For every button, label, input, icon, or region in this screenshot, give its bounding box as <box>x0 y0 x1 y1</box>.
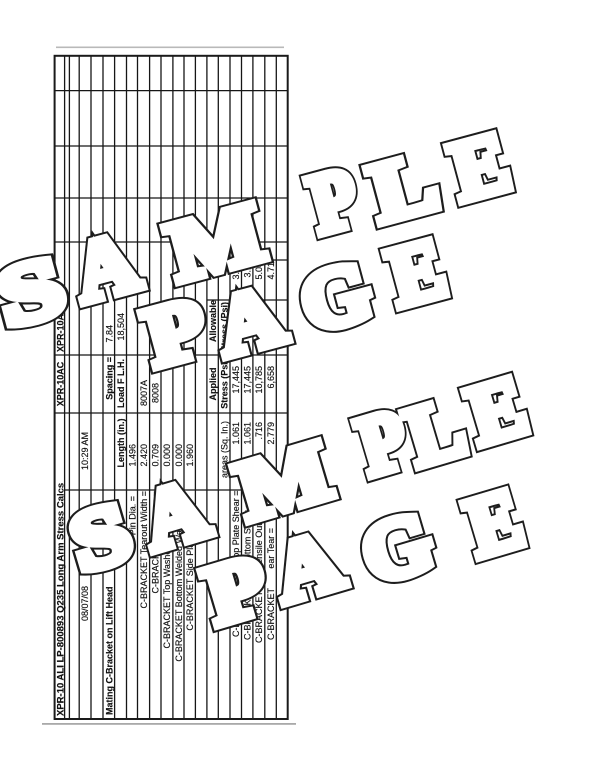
svg-text:0.709: 0.709 <box>151 444 161 467</box>
svg-text:Load F L.H.: Load F L.H. <box>116 359 126 408</box>
svg-text:6,658: 6,658 <box>266 366 276 389</box>
svg-text:1.496: 1.496 <box>128 444 138 467</box>
svg-text:Spacing =: Spacing = <box>105 357 115 400</box>
svg-text:18,504: 18,504 <box>116 313 126 341</box>
svg-text:0.000: 0.000 <box>162 444 172 467</box>
svg-text:7.84: 7.84 <box>105 325 115 343</box>
svg-text:8007A: 8007A <box>139 380 149 406</box>
svg-text:1.061: 1.061 <box>243 422 253 445</box>
svg-text:Applied: Applied <box>208 368 218 401</box>
svg-text:10:29 AM: 10:29 AM <box>80 432 90 470</box>
svg-text:.716: .716 <box>254 422 264 440</box>
svg-text:08/07/08: 08/07/08 <box>80 586 90 621</box>
svg-text:Mating C-Bracket on Lift Head: Mating C-Bracket on Lift Head <box>105 586 115 715</box>
svg-text:1.061: 1.061 <box>231 422 241 445</box>
svg-text:8008: 8008 <box>151 383 161 403</box>
svg-text:XPR-10AC: XPR-10AC <box>56 361 66 406</box>
svg-text:10,785: 10,785 <box>254 366 264 394</box>
svg-text:Length (in.): Length (in.) <box>116 419 126 468</box>
svg-text:2.420: 2.420 <box>139 444 149 467</box>
svg-text:0.000: 0.000 <box>174 444 184 467</box>
svg-text:Pin Dia. =: Pin Dia. = <box>128 496 138 535</box>
